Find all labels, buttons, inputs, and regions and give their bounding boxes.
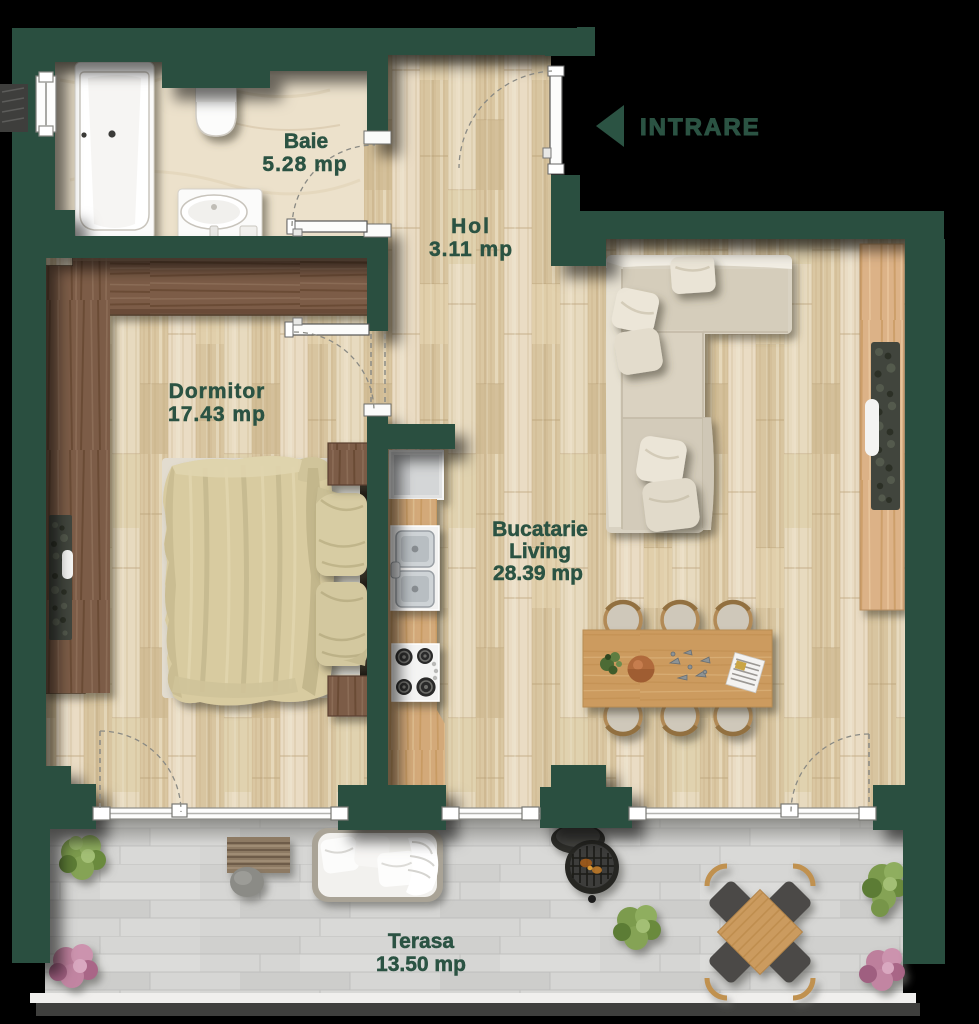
svg-text:3.11 mp: 3.11 mp [429,238,513,261]
svg-text:Dormitor: Dormitor [169,380,266,403]
svg-text:Living: Living [509,540,571,563]
svg-text:28.39 mp: 28.39 mp [493,562,583,585]
svg-text:5.28 mp: 5.28 mp [262,153,347,176]
svg-text:INTRARE: INTRARE [640,114,761,141]
svg-text:17.43 mp: 17.43 mp [168,403,266,426]
svg-text:Terasa: Terasa [388,930,454,953]
svg-text:Hol: Hol [451,215,491,238]
svg-text:13.50 mp: 13.50 mp [376,953,466,976]
svg-text:Bucatarie: Bucatarie [492,518,588,541]
svg-text:Baie: Baie [284,130,328,153]
